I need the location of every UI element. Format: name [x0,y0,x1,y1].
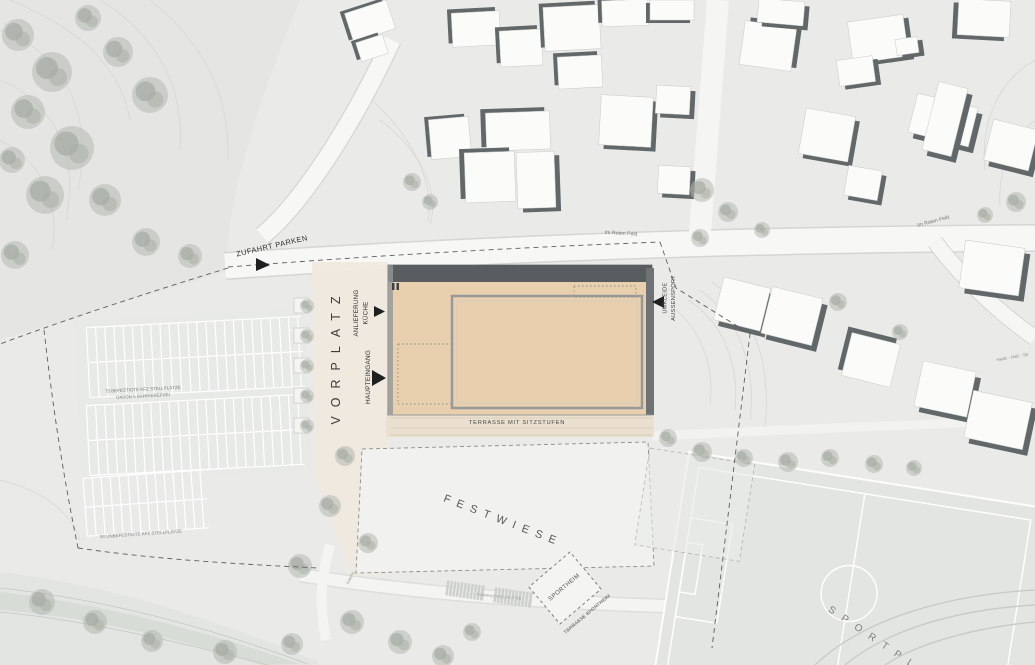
house [982,119,1035,177]
label-umkleide-line2: AUSSENSPORT [669,275,677,321]
tree-icon [754,222,770,238]
tree-icon [83,610,107,634]
house [655,85,696,119]
tree-icon [178,244,202,268]
tree-icon [735,449,753,467]
tree-icon [288,554,312,578]
tree-icon [300,389,314,403]
tree-icon [32,52,72,92]
house [798,108,861,167]
house [459,147,516,203]
tree-icon [11,95,45,129]
tree-icon [906,460,922,476]
community-hall-building [388,265,654,415]
label-umkleide-line1: UMKLEIDE [661,275,669,321]
house [597,0,648,27]
tree-icon [300,329,314,343]
tree-icon [403,173,421,191]
tree-icon [89,184,121,216]
house [495,25,543,67]
tree-icon [132,77,168,113]
label-haupteingang: HAUPTEINGANG [364,350,371,404]
house [553,51,603,89]
tree-icon [821,449,839,467]
tree-icon [26,176,64,214]
tree-icon [1,241,29,269]
tree-icon [75,5,101,31]
tree-icon [281,633,303,655]
tree-icon [892,324,908,340]
tree-icon [0,147,25,173]
house [657,165,696,199]
tree-icon [141,630,163,652]
tree-icon [103,37,133,67]
tree-icon [432,645,454,665]
house [599,95,659,152]
tree-icon [300,299,314,313]
tree-icon [778,452,798,472]
house [757,0,810,30]
label-anlieferung-kueche: ANLIEFERUNG KÜCHE [352,290,370,337]
label-umkleide-aussensport: UMKLEIDE AUSSENSPORT [661,275,678,321]
tree-icon [319,495,341,517]
tree-icon [132,228,160,256]
outdoor-court [635,448,755,561]
tree-icon [29,589,55,615]
tree-icon [335,446,355,466]
house [958,240,1031,302]
site-plan: ZUFAHRT PARKEN VORPLATZ ANLIEFERUNG KÜCH… [0,0,1035,665]
tree-icon [300,359,314,373]
house [516,151,561,212]
main-hall [452,296,642,408]
tree-icon [358,533,378,553]
tree-icon [340,610,364,634]
site-plan-drawing [0,0,1035,665]
tree-icon [463,623,481,641]
label-anlieferung-line1: ANLIEFERUNG [352,290,361,337]
tree-icon [1006,192,1026,212]
house [952,0,1011,41]
tree-icon [977,207,993,223]
house [963,390,1035,456]
parking-lot [74,308,316,546]
tree-icon [829,293,847,311]
tree-icon [422,194,438,210]
house [837,327,902,388]
house [480,107,550,151]
tree-icon [50,126,94,170]
tree-icon [300,419,314,433]
house [836,55,881,90]
house [539,1,601,52]
house [843,165,887,205]
label-vorplatz: VORPLATZ [329,287,343,424]
tree-icon [692,442,712,462]
tree-icon [213,640,237,664]
tree-icon [865,455,883,473]
label-terrasse-sitzstufen: TERRASSE MIT SITZSTUFEN [469,419,565,425]
house [760,286,829,351]
vegetation-area [0,0,300,340]
tree-icon [691,229,709,247]
tree-icon [659,429,677,447]
tree-icon [2,19,34,51]
festwiese-lawn [356,442,654,573]
entrance-mark-icon [392,283,395,290]
tree-icon [690,178,714,202]
tree-icon [718,202,738,222]
stream [0,572,318,665]
house [447,7,501,48]
house [646,0,694,23]
tree-icon [388,630,412,654]
label-anlieferung-line2: KÜCHE [361,290,370,337]
